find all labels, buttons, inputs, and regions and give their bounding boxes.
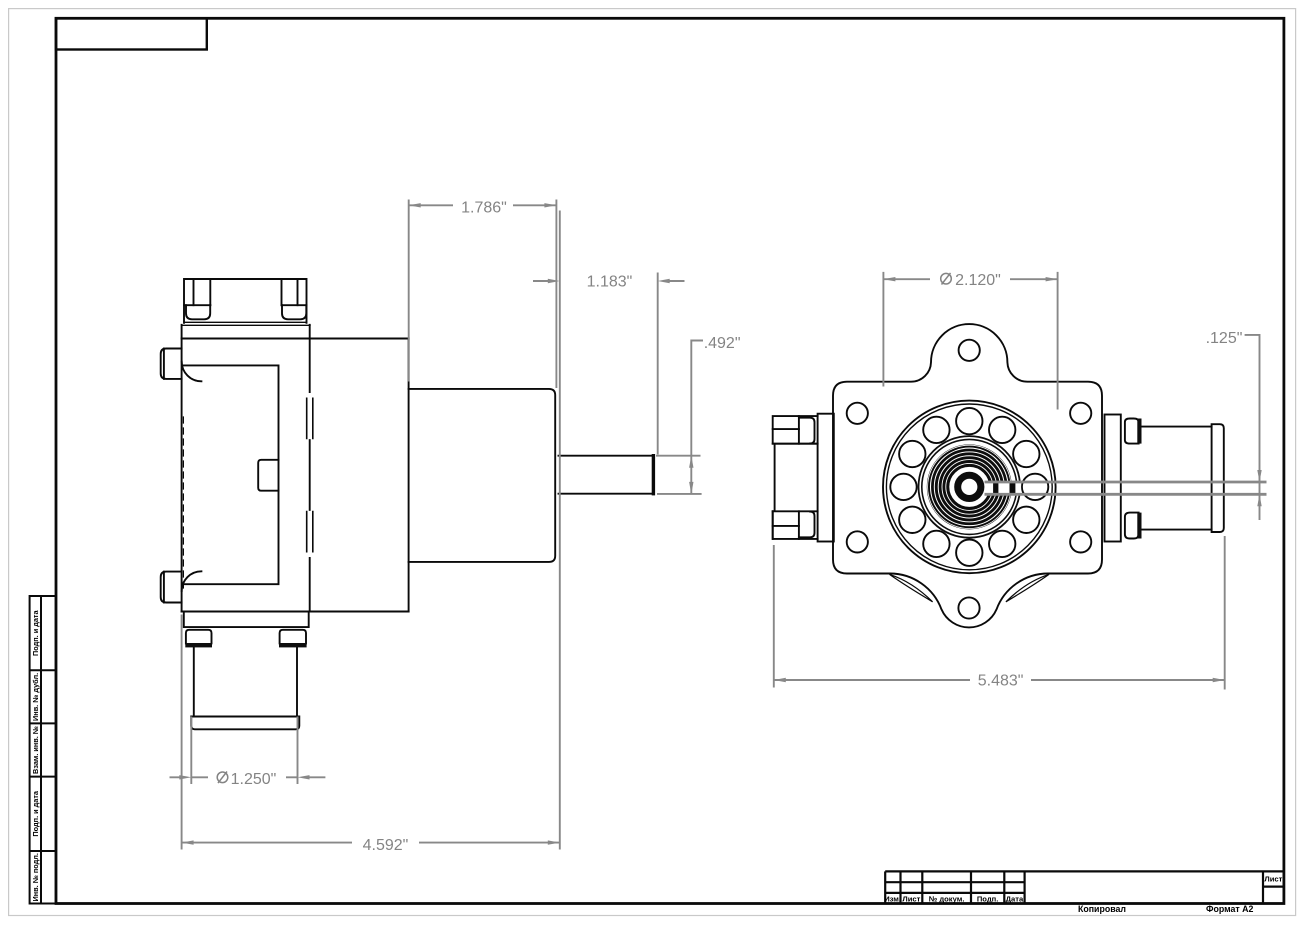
svg-text:Формат A2: Формат A2 [1206,904,1254,914]
svg-text:5.483": 5.483" [978,672,1024,689]
svg-text:Копировал: Копировал [1078,904,1126,914]
svg-text:Изм.: Изм. [884,894,901,903]
svg-text:1.183": 1.183" [587,274,633,291]
svg-text:Подп.: Подп. [977,894,999,903]
svg-text:Инв. № подл.: Инв. № подл. [31,853,40,901]
svg-text:Взам. инв. №: Взам. инв. № [31,726,40,774]
svg-text:Лист: Лист [902,894,920,903]
svg-text:Лист: Лист [1264,875,1282,884]
svg-text:Инв. № дубл.: Инв. № дубл. [31,673,40,721]
svg-text:Дата: Дата [1006,894,1024,903]
svg-text:1.250": 1.250" [231,771,277,788]
svg-text:Подп. и дата: Подп. и дата [31,609,40,655]
svg-text:№ докум.: № докум. [929,894,965,903]
svg-text:.492": .492" [704,335,741,352]
svg-text:1.786": 1.786" [461,199,507,216]
svg-text:.125": .125" [1206,330,1243,347]
svg-text:4.592": 4.592" [363,837,409,854]
svg-text:Подп. и дата: Подп. и дата [31,790,40,836]
svg-text:2.120": 2.120" [955,272,1001,289]
